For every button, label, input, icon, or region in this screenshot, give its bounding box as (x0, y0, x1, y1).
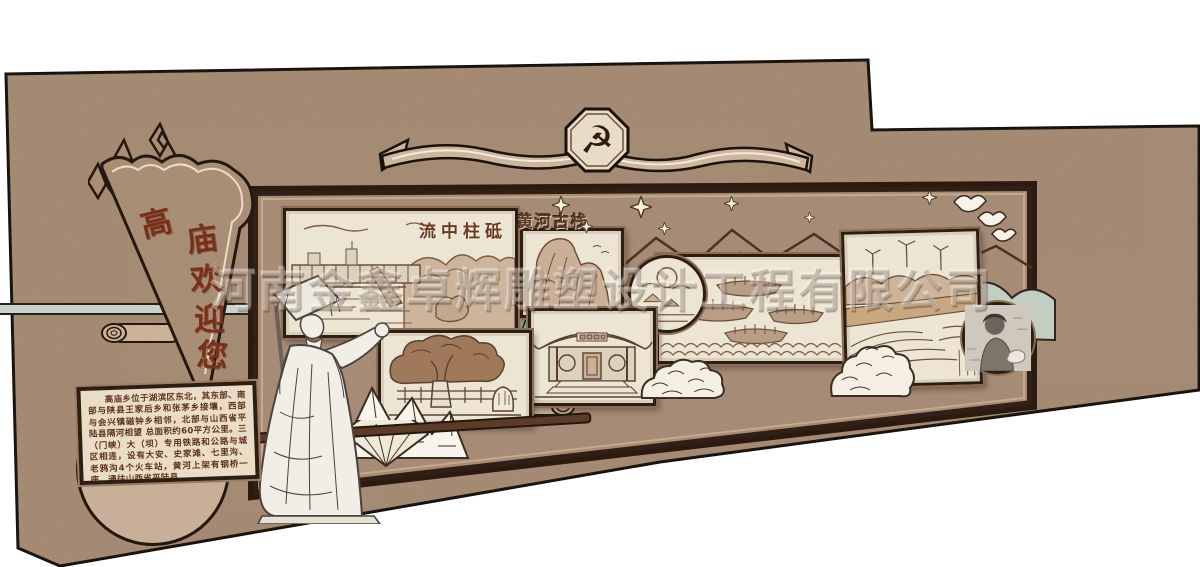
sparkle-star-icon (630, 196, 652, 218)
rock-cluster-decoration (638, 344, 738, 402)
info-plaque-text: 高庙乡位于湖滨区东北，其东部、南部与陕县王家后乡和张茅乡接壤，西部与会兴镇磁钟乡… (88, 390, 249, 485)
party-emblem-icon: ☭ (580, 118, 614, 162)
boat-row (725, 324, 787, 344)
cultural-wall-rendering: 流中柱砥 黄河古栈 (0, 0, 1200, 567)
panel-dam-title: 流中柱砥 (419, 217, 507, 242)
doves-icon (948, 188, 1020, 246)
company-watermark: 河南金鑫卓辉雕塑设计工程有限公司 (210, 254, 1030, 320)
rock-cluster-decoration (826, 326, 920, 400)
sparkle-star-icon (658, 222, 671, 235)
party-emblem-badge: ☭ (563, 106, 631, 174)
sparkle-star-icon (580, 220, 593, 233)
temple-sketch (531, 311, 653, 403)
sparkle-star-icon (552, 196, 570, 214)
info-plaque: 高庙乡位于湖滨区东北，其东部、南部与陕县王家后乡和张茅乡接壤，西部与会兴镇磁钟乡… (76, 381, 259, 485)
stone-stele (493, 387, 514, 411)
sparkle-star-icon (804, 212, 815, 223)
sparkle-star-icon (922, 190, 937, 205)
flag-char: 您 (195, 329, 229, 376)
panel-temple-scene (528, 308, 656, 406)
sparkle-star-icon (724, 196, 739, 211)
